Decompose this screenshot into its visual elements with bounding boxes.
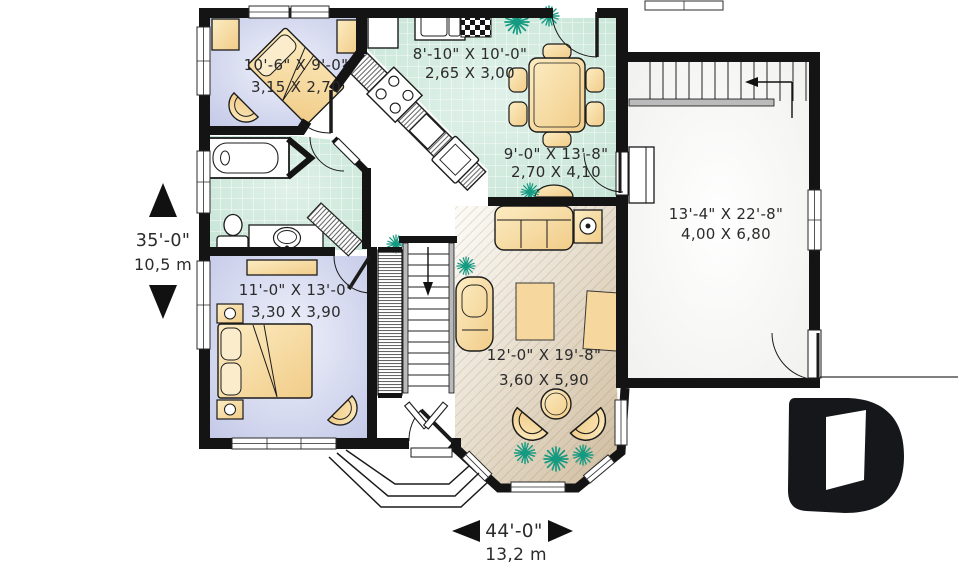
living-dining-half-wall [488,197,628,206]
bay-round-table [541,389,571,419]
bathtub [208,138,289,178]
bathroom-top-wall [204,126,304,135]
chaise-chair [456,277,493,351]
dining-chair [586,102,604,126]
central-staircase [378,236,457,398]
living-label-imperial: 12'-0" X 19'-8" [487,346,601,364]
window-bathroom-left [197,151,210,213]
garage-right-wall [809,52,820,192]
overall-width-dimension: 44'-0" 13,2 m [452,520,573,565]
bedroom-upper-label-imperial: 10'-6" X 9'-0" [244,56,349,74]
bedroom-lower-label-imperial: 11'-0" X 13'-0" [239,281,353,299]
depth-imperial: 35'-0" [136,231,190,251]
garage-vestibule-step [629,147,654,203]
kitchen-label-imperial: 8'-10" X 10'-0" [413,45,527,63]
side-table-lamp [574,210,602,243]
dining-chair [509,102,527,126]
garage-top-wall [628,52,820,62]
depth-metric: 10,5 m [134,255,192,274]
dimension-arrow-up-icon [149,183,177,217]
dimension-arrow-down-icon [149,285,177,319]
width-metric: 13,2 m [485,545,547,565]
garage-label-metric: 4,00 X 6,80 [681,225,771,243]
window-bay-bottom [511,482,565,492]
stair-rail [403,243,408,393]
window-bedroom-lower-bottom [232,438,336,449]
floor-plan-drawing: 10'-6" X 9'-0" 3,15 X 2,70 8'-10" X 10'-… [0,0,960,569]
nightstand [217,304,243,323]
stair-rail [449,243,454,393]
bedroom-kitchen-wall [356,14,367,54]
stairs-down-arrowhead-icon [423,282,433,296]
dining-label-imperial: 9'-0" X 13'-8" [504,145,609,163]
window-bedroom-lower-left [197,261,210,349]
stair-closet-hatch [378,250,402,395]
dimension-arrow-left-icon [452,520,480,542]
plant-icon [573,445,593,465]
dining-table [529,58,585,132]
drummond-logo-icon: D [788,398,904,513]
dresser-upper [337,20,358,53]
window-bedroom-upper-top [249,6,329,18]
plant-icon [515,443,536,464]
exterior-stoop-top [645,1,723,10]
garage-bottom-wall [628,378,820,388]
living-garage-wall [616,8,628,153]
dimension-arrow-right-icon [548,520,573,542]
sofa [495,206,573,250]
bedroom-lower-right-wall [367,247,377,445]
window-bedroom-upper-left [197,27,210,95]
bedroom-upper-label-metric: 3,15 X 2,70 [251,78,341,96]
nightstand [217,400,243,419]
plant-icon [544,447,568,471]
kitchen-label-metric: 2,65 X 3,00 [425,64,515,82]
bedroom-lower-label-metric: 3,30 X 3,90 [251,303,341,321]
garage-label-imperial: 13'-4" X 22'-8" [669,205,783,223]
bed-lower [218,324,312,398]
garage-stair-rail [629,99,774,106]
rug [516,283,554,340]
window-garage-right [808,190,821,250]
bathroom-bottom-wall [204,247,335,256]
corner-dresser-upper [212,19,239,50]
dining-chair [543,44,571,59]
living-label-metric: 3,60 X 5,90 [499,371,589,389]
floor-plan-page: 10'-6" X 9'-0" 3,15 X 2,70 8'-10" X 10'-… [0,0,960,569]
dining-label-metric: 2,70 X 4,10 [511,163,601,181]
bathroom-right-wall [362,168,371,249]
plant-icon [457,257,475,275]
window-living-right [615,400,627,445]
dresser-lower [247,260,317,275]
width-imperial: 44'-0" [485,521,542,542]
overall-depth-dimension: 35'-0" 10,5 m [134,183,192,319]
dining-chair [586,68,604,92]
